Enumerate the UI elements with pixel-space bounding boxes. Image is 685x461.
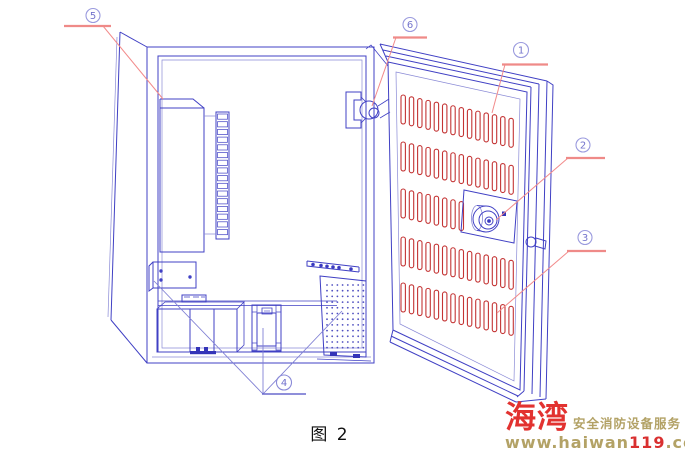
power-module — [252, 305, 281, 351]
cabinet-line-drawing: 5 6 1 2 — [0, 0, 685, 461]
figure-2-cabinet-drawing: 5 6 1 2 — [0, 0, 685, 461]
callout-number: 2 — [580, 141, 586, 152]
url-prefix: www.haiwan — [505, 433, 629, 452]
callout-number: 4 — [281, 378, 287, 389]
url-highlight: 119 — [629, 433, 665, 452]
brand-logo: 海湾 安全消防设备服务 www.haiwan119.com — [505, 403, 685, 451]
door-lock — [461, 190, 517, 243]
callout-number: 5 — [90, 11, 96, 22]
callout-5: 5 — [64, 9, 163, 100]
brand-name: 海湾 — [505, 403, 569, 434]
callout-number: 6 — [407, 20, 413, 31]
relay-box — [149, 262, 196, 291]
main-control-panel — [160, 99, 204, 252]
perforated-board — [307, 261, 371, 361]
figure-caption: 图 2 — [285, 420, 375, 445]
callout-number: 1 — [518, 46, 524, 57]
battery-pack — [157, 295, 244, 354]
door-vents — [401, 95, 513, 335]
cabinet-outline — [108, 32, 374, 363]
callout-6: 6 — [372, 18, 427, 107]
url-suffix: .com — [665, 433, 685, 452]
callout-number: 3 — [582, 233, 588, 244]
terminal-strip — [204, 112, 229, 239]
brand-tagline: 安全消防设备服务 — [573, 418, 681, 435]
brand-url: www.haiwan119.com — [505, 435, 685, 451]
